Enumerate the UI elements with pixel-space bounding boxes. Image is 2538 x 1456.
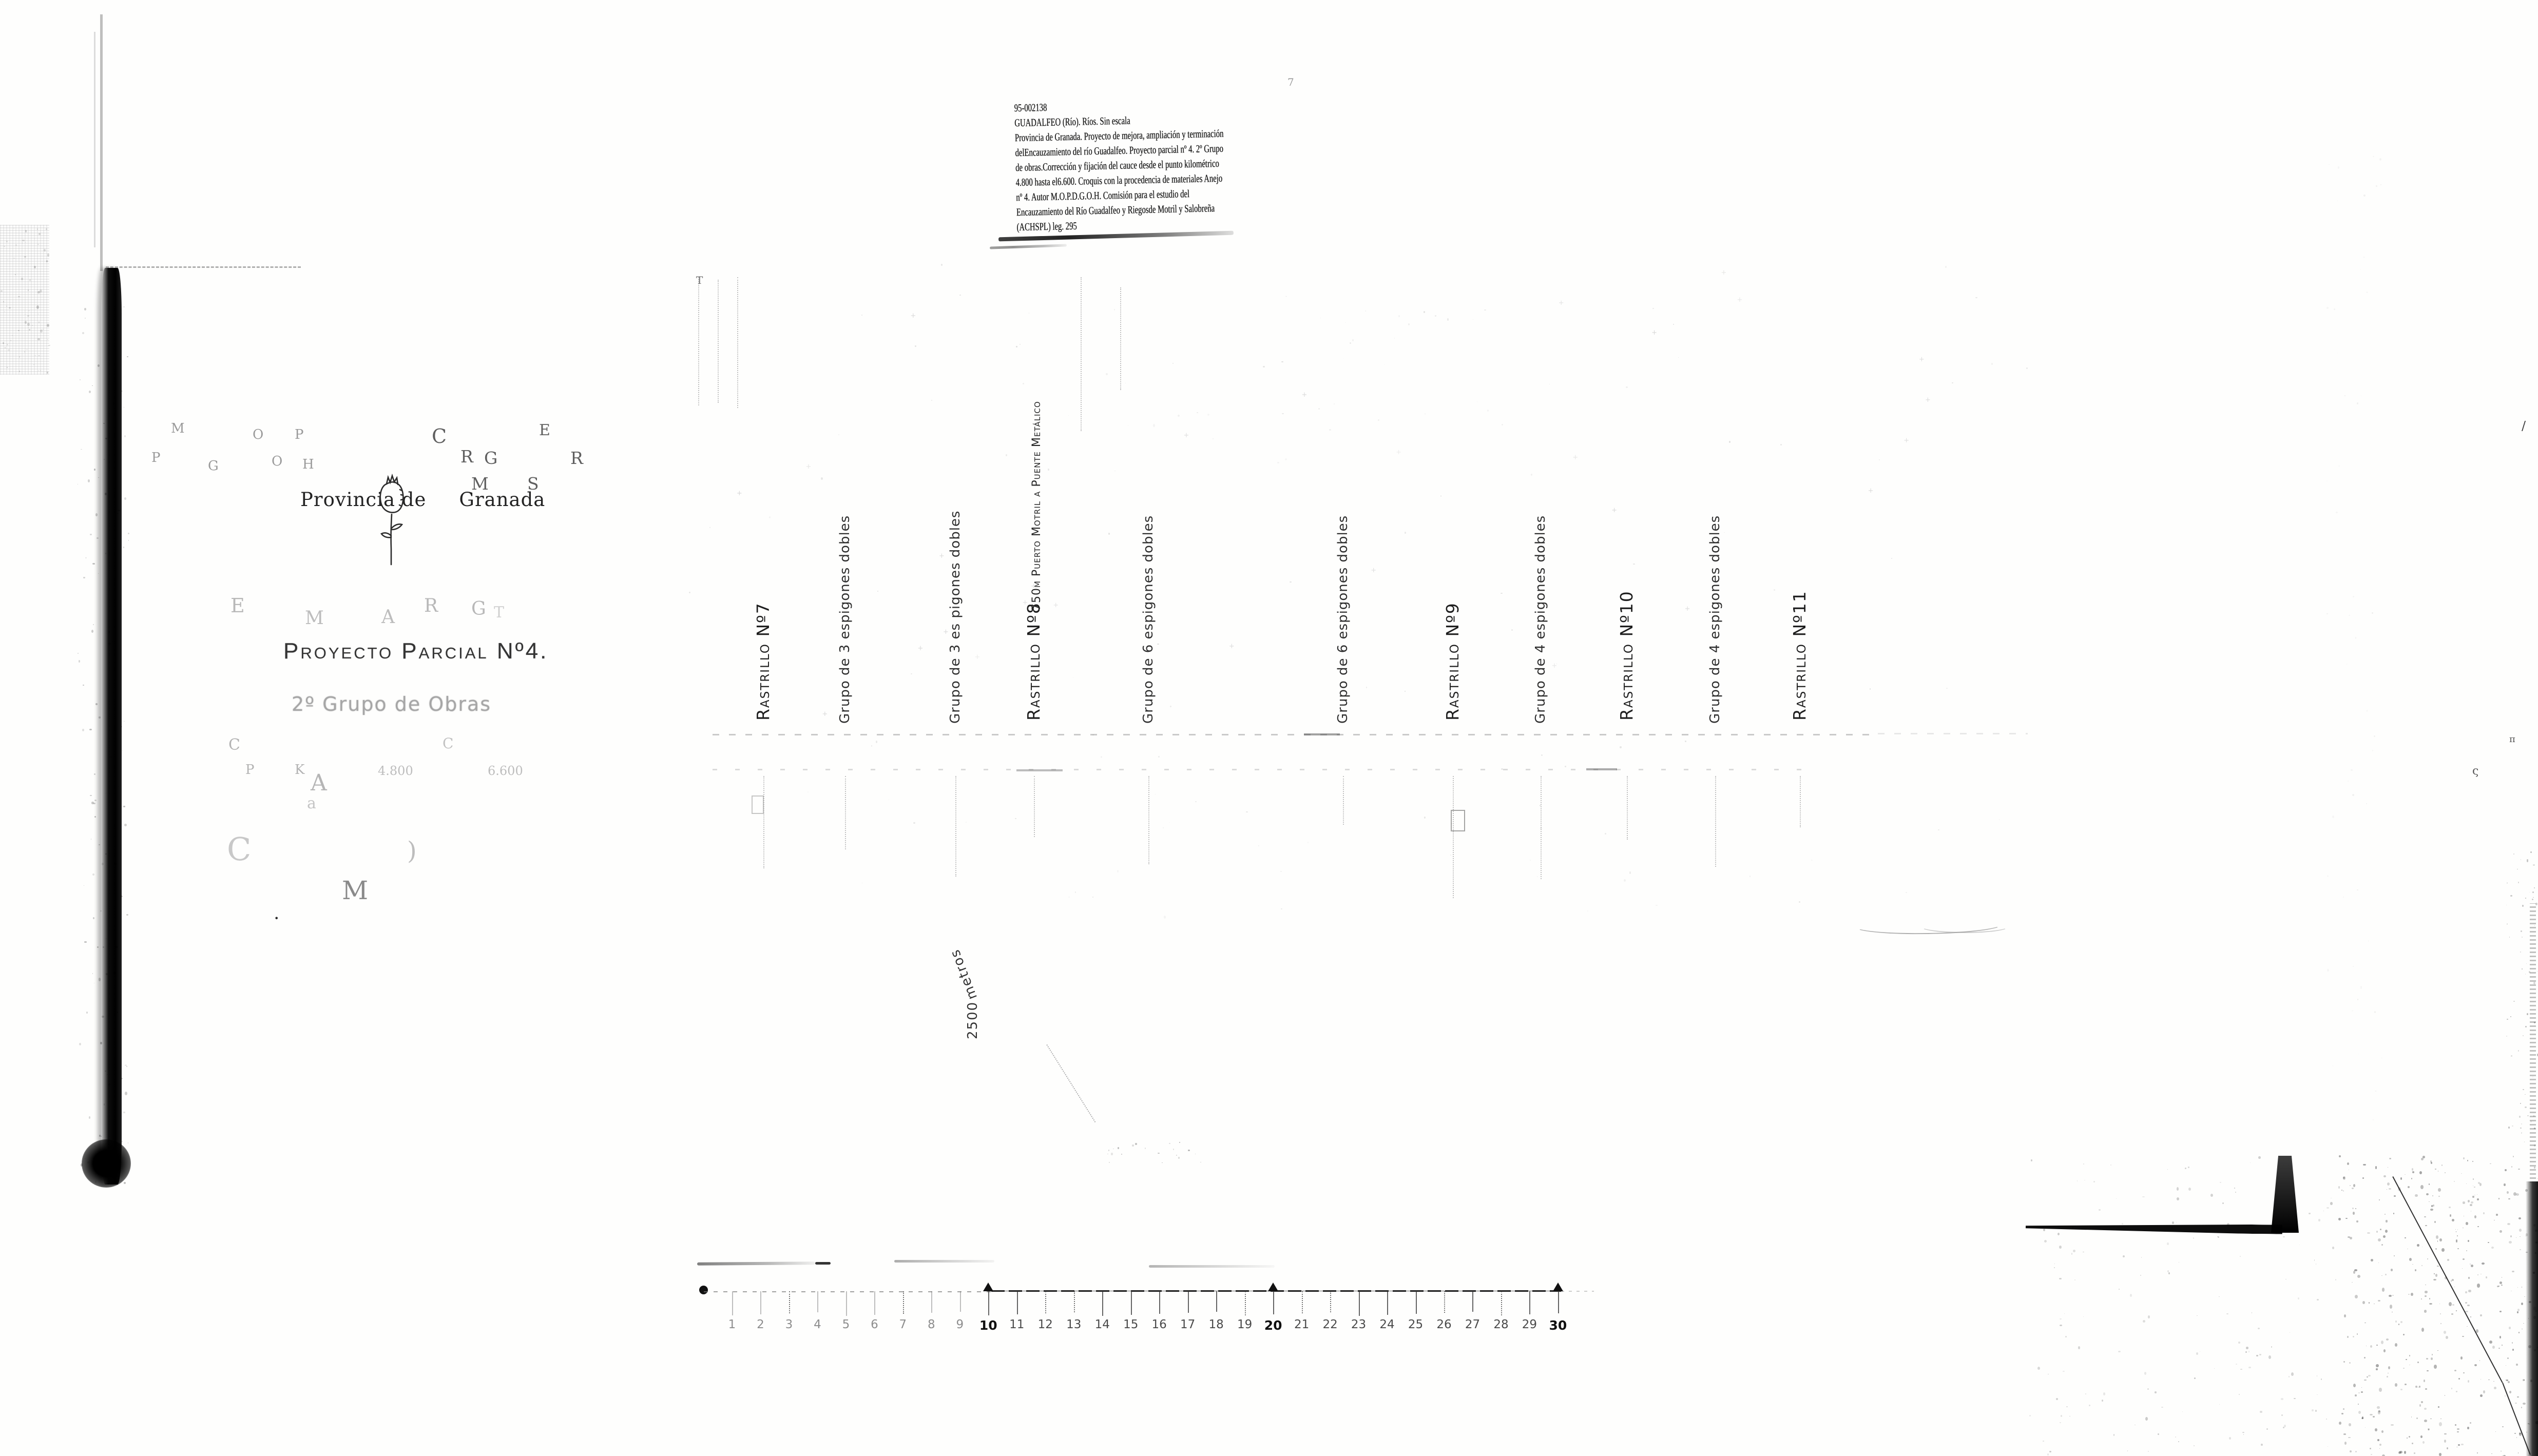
scan-smudge-line [894,1260,994,1263]
noise-speck [2407,1438,2407,1439]
noise-speck [2406,1359,2407,1361]
sheet-border-line [106,266,301,268]
noise-speck [2432,1195,2433,1196]
scale-number: 21 [1291,1318,1313,1331]
noise-speck [2093,1181,2095,1182]
noise-speck [27,349,27,350]
ghost-letter: E [230,594,245,617]
noise-speck [40,370,41,371]
noise-speck [84,941,87,942]
noise-speck [1652,308,1654,309]
noise-speck [2411,1416,2412,1418]
noise-speck [2394,1255,2395,1256]
noise-speck [37,338,40,340]
noise-speck [124,1182,126,1183]
noise-speck [2362,1301,2365,1304]
noise-speck [2245,1351,2247,1353]
noise-speck [2389,1188,2391,1190]
noise-speck [2355,1394,2357,1396]
noise-speck [91,839,92,840]
noise-speck [2477,1452,2478,1453]
noise-speck [94,816,96,818]
noise-speck [1213,438,1214,439]
noise-speck [2472,1196,2474,1197]
noise-speck [2530,1121,2532,1122]
noise-speck [807,791,809,792]
noise-speck [2360,269,2361,270]
noise-speck [2494,1387,2496,1389]
noise-speck [2441,1164,2443,1166]
noise-speck [2412,1168,2414,1170]
noise-speck [109,1180,110,1181]
noise-speck [2466,1250,2467,1251]
registration-plus-mark: + [1904,437,1909,444]
noise-speck [2377,1439,2379,1441]
noise-speck [2454,1287,2455,1287]
noise-speck [2415,1194,2418,1197]
noise-speck [1365,310,1366,312]
noise-speck [2506,1365,2506,1366]
noise-speck [2063,1371,2065,1372]
channel-bank-line-lower [713,769,1816,770]
noise-speck [2473,1178,2474,1180]
noise-speck [1281,908,1282,909]
noise-speck [1132,1144,1134,1147]
noise-speck [2529,1423,2530,1424]
noise-speck [2326,1419,2328,1420]
noise-speck [124,435,126,437]
noise-speck [2433,1279,2436,1280]
scale-distance-label: 2500 metros [965,943,980,1039]
scale-number: 30 [1547,1318,1569,1333]
noise-speck [2390,1158,2391,1159]
noise-speck [2375,1166,2377,1169]
noise-speck [2456,1231,2456,1232]
noise-speck [2361,396,2361,397]
noise-speck [2521,1303,2523,1305]
noise-speck [18,330,20,332]
noise-speck [2515,1403,2517,1404]
noise-speck [2494,1220,2495,1220]
noise-speck [2411,1293,2413,1296]
noise-speck [2525,1106,2527,1108]
registration-plus-mark: + [974,653,980,661]
noise-speck [2445,1172,2446,1173]
noise-speck [104,1171,107,1174]
registration-plus-mark: + [1031,583,1036,590]
noise-speck [1163,827,1164,828]
noise-speck [2433,1205,2434,1207]
noise-speck [1068,415,1069,416]
noise-speck [84,885,84,886]
noise-speck [1263,366,1265,367]
noise-speck [2408,1294,2410,1295]
scan-bottom-streak [2026,1222,2282,1234]
espigon-dotted-line [1715,776,1716,867]
noise-speck [2197,1315,2198,1316]
noise-speck [2502,1277,2503,1278]
registration-plus-mark: + [1396,449,1401,456]
noise-speck [2336,512,2337,513]
ghost-letter: M [342,876,368,905]
noise-speck [1424,311,1426,313]
noise-speck [2479,1183,2482,1186]
noise-speck [2431,1162,2432,1164]
noise-speck [2488,1242,2489,1243]
noise-speck [46,228,47,229]
noise-speck [2352,1188,2353,1189]
noise-speck [2352,1282,2352,1283]
noise-speck [2451,1388,2453,1389]
noise-speck [2507,1019,2508,1020]
noise-speck [1724,532,1724,533]
noise-speck [2083,1316,2084,1317]
noise-speck [2518,1332,2520,1333]
noise-speck [1153,424,1155,426]
noise-speck [941,264,943,266]
noise-speck [1774,589,1775,591]
noise-speck [2064,1313,2065,1314]
noise-speck [1501,768,1503,770]
noise-speck [1162,1162,1163,1163]
noise-speck [2047,1453,2049,1455]
scan-left-edge-bar [101,268,122,1185]
noise-speck [27,323,30,326]
noise-speck [2490,1163,2491,1164]
noise-speck [2425,1225,2427,1227]
scale-number: 16 [1148,1318,1170,1331]
noise-speck [2338,465,2340,467]
noise-speck [2432,1354,2433,1355]
noise-speck [13,228,14,228]
noise-speck [2236,1364,2238,1365]
noise-speck [122,1141,123,1142]
noise-speck [2444,1440,2446,1443]
registration-plus-mark: + [1184,432,1189,439]
noise-speck [92,873,94,876]
noise-speck [79,660,81,663]
scale-number: 6 [863,1318,886,1331]
noise-speck [2529,1301,2531,1303]
noise-speck [2535,1421,2538,1425]
noise-speck [2281,1398,2283,1400]
noise-speck [2054,1264,2055,1264]
noise-speck [2510,1016,2511,1017]
noise-speck [2315,1410,2317,1412]
noise-speck [2521,1123,2522,1124]
channel-bank-line-upper [713,734,1878,735]
noise-speck [2466,1183,2467,1184]
noise-speck [2347,1162,2349,1165]
noise-speck [2122,1223,2123,1225]
noise-speck [78,484,78,484]
noise-speck [84,308,86,310]
noise-speck [2058,1233,2060,1235]
ghost-letter: A [381,607,395,628]
noise-speck [2356,1220,2358,1222]
noise-speck [1487,410,1489,412]
noise-speck [1121,1154,1122,1155]
noise-speck [959,295,960,296]
noise-speck [1477,401,1477,402]
noise-speck [2048,1374,2049,1374]
noise-speck [2252,1312,2253,1313]
noise-speck [2476,1329,2478,1332]
noise-speck [29,279,31,281]
noise-speck [2089,1405,2090,1406]
noise-speck [2226,1313,2228,1314]
noise-speck [2513,1156,2514,1158]
noise-speck [2506,1036,2507,1037]
noise-speck [2405,1174,2405,1175]
noise-speck [2350,1237,2352,1239]
noise-speck [93,803,95,804]
scale-number: 25 [1405,1318,1427,1331]
noise-speck [2455,1424,2456,1426]
noise-speck [2357,889,2358,890]
noise-speck [2512,1349,2514,1351]
noise-speck [104,459,105,460]
noise-speck [2523,1323,2524,1324]
noise-speck [2497,1286,2499,1287]
noise-speck [1366,687,1368,688]
noise-speck [2505,1395,2506,1396]
noise-speck [2435,1248,2437,1250]
noise-speck [2218,1236,2219,1238]
noise-speck [93,917,94,919]
registration-plus-mark: + [1559,299,1564,307]
scale-line-left [704,1291,991,1292]
noise-speck [2471,1265,2474,1267]
ghost-letter: C [227,830,251,868]
ghost-letter: ) [407,837,417,865]
noise-speck [2196,1352,2198,1355]
noise-speck [2353,596,2354,597]
noise-speck [2343,1361,2345,1363]
noise-speck [2343,1176,2346,1180]
scale-tick [960,1291,961,1312]
noise-speck [2495,1431,2496,1432]
noise-speck [2532,899,2533,900]
noise-speck [2499,1230,2502,1233]
noise-speck [838,434,839,435]
noise-speck [2444,1331,2446,1333]
noise-speck [1109,1162,1110,1163]
noise-speck [124,407,124,407]
noise-speck [931,400,932,401]
noise-speck [97,537,99,539]
noise-speck [92,563,95,565]
noise-speck [2370,1414,2373,1415]
noise-speck [2145,1417,2148,1421]
noise-speck [2103,1392,2106,1395]
noise-speck [2349,1362,2351,1364]
channel-bank-dark-segment [1586,768,1617,770]
noise-speck [2366,1346,2367,1346]
noise-speck [2374,1304,2374,1304]
noise-speck [2372,612,2373,614]
scale-number: 2 [749,1318,772,1331]
noise-speck [2283,1236,2285,1237]
noise-speck [2130,1294,2132,1297]
noise-speck [105,493,107,495]
noise-speck [2409,1436,2411,1438]
noise-speck [2525,898,2526,899]
noise-speck [1308,842,1309,843]
noise-speck [2349,1170,2349,1170]
espigon-dotted-line [955,776,956,877]
noise-speck [2344,395,2345,396]
noise-speck [2383,1175,2386,1178]
noise-speck [2525,1189,2528,1191]
noise-speck [2447,1447,2449,1450]
noise-speck [2501,1451,2502,1451]
noise-speck [2505,1169,2507,1171]
noise-speck [86,557,86,558]
noise-speck [2452,1279,2454,1281]
noise-speck [2481,1274,2482,1274]
noise-speck [2477,1226,2478,1227]
noise-speck [2395,1383,2397,1386]
noise-speck [2510,1235,2512,1237]
noise-speck [2511,1291,2512,1291]
noise-speck [2461,1173,2462,1174]
noise-speck [2083,1252,2084,1253]
noise-speck [2258,1156,2260,1159]
noise-speck [2508,1381,2510,1383]
noise-speck [2518,1169,2520,1170]
noise-speck [2526,1432,2527,1432]
noise-speck [2327,969,2329,971]
noise-speck [2467,1160,2468,1161]
noise-speck [2523,1403,2526,1405]
noise-speck [2481,1379,2481,1380]
noise-speck [1285,458,1286,460]
noise-speck [2468,1200,2470,1202]
noise-speck [2430,1160,2432,1162]
noise-speck [2338,166,2340,169]
noise-speck [2243,1434,2244,1435]
scale-tick [931,1291,932,1313]
noise-speck [2343,897,2344,898]
registration-plus-mark: + [1053,601,1059,609]
scale-tick [1416,1291,1417,1314]
noise-speck [2144,1372,2146,1375]
noise-speck [1069,897,1070,898]
noise-speck [2480,1314,2482,1317]
noise-speck [2158,1433,2159,1435]
noise-speck [1107,1154,1108,1154]
noise-speck [125,1092,127,1095]
scale-number: 26 [1433,1318,1455,1331]
registration-plus-mark: + [1919,356,1925,363]
noise-speck [2491,1247,2494,1249]
noise-speck [1408,323,1410,325]
noise-speck [2438,1196,2440,1197]
noise-speck [24,256,26,258]
noise-speck [2525,974,2526,975]
noise-speck [2379,1388,2381,1392]
noise-speck [2412,1443,2413,1444]
noise-speck [1484,309,1486,310]
noise-speck [2382,1288,2385,1292]
noise-speck [100,910,101,911]
noise-speck [94,469,95,471]
noise-speck [1424,817,1426,819]
noise-speck [2194,1377,2196,1379]
noise-speck [98,573,99,574]
noise-speck [2457,1235,2458,1236]
noise-speck [2352,794,2354,797]
noise-speck [2222,1202,2223,1204]
noise-speck [2468,1290,2471,1292]
noise-speck [2321,1379,2322,1380]
noise-speck [2534,1167,2535,1169]
noise-speck [2412,1264,2413,1265]
noise-speck [1285,296,1286,297]
noise-speck [911,673,912,674]
noise-speck [2366,710,2368,712]
noise-speck [2060,1325,2062,1326]
noise-speck [1473,319,1473,320]
noise-speck [2421,1401,2423,1404]
noise-speck [2463,1372,2465,1374]
plan-structure-box [752,795,764,814]
noise-speck [2210,1194,2213,1197]
noise-speck [2065,1336,2067,1337]
noise-speck [2460,1356,2463,1359]
scale-number: 13 [1063,1318,1085,1331]
ghost-letter: a [307,794,316,812]
scale-tick [1102,1291,1103,1316]
noise-speck [2509,1241,2512,1243]
noise-speck [121,896,123,898]
noise-speck [2471,1201,2473,1204]
noise-speck [2043,1229,2045,1231]
noise-speck [2527,1013,2528,1015]
ghost-letter: C [432,425,447,448]
noise-speck [1280,871,1282,872]
plan-grid-dotted-line [737,277,738,408]
noise-speck [95,703,98,705]
noise-speck [1549,384,1550,384]
noise-speck [2499,1282,2503,1284]
noise-speck [2426,1358,2428,1359]
noise-speck [37,228,38,230]
registration-plus-mark: + [1651,329,1657,337]
noise-speck [2395,1343,2397,1347]
noise-speck [2439,1422,2442,1426]
noise-speck [2520,1128,2521,1129]
noise-speck [116,946,118,948]
noise-speck [2472,1161,2473,1162]
catalog-underline-2 [990,244,1067,249]
noise-speck [2425,1388,2427,1390]
noise-speck [2416,1418,2418,1419]
noise-speck [1531,474,1533,475]
noise-speck [2526,963,2527,964]
noise-speck [2493,1381,2494,1382]
ghost-letter: C [228,736,240,754]
noise-speck [2127,1450,2128,1451]
plan-label-grupo: Grupo de 3 espigones dobles [837,515,853,724]
noise-speck [2043,1441,2044,1442]
noise-speck [2141,1257,2142,1257]
noise-speck [2518,882,2519,883]
noise-speck [2477,1284,2479,1288]
noise-speck [2167,1169,2168,1170]
noise-speck [2511,1166,2512,1168]
